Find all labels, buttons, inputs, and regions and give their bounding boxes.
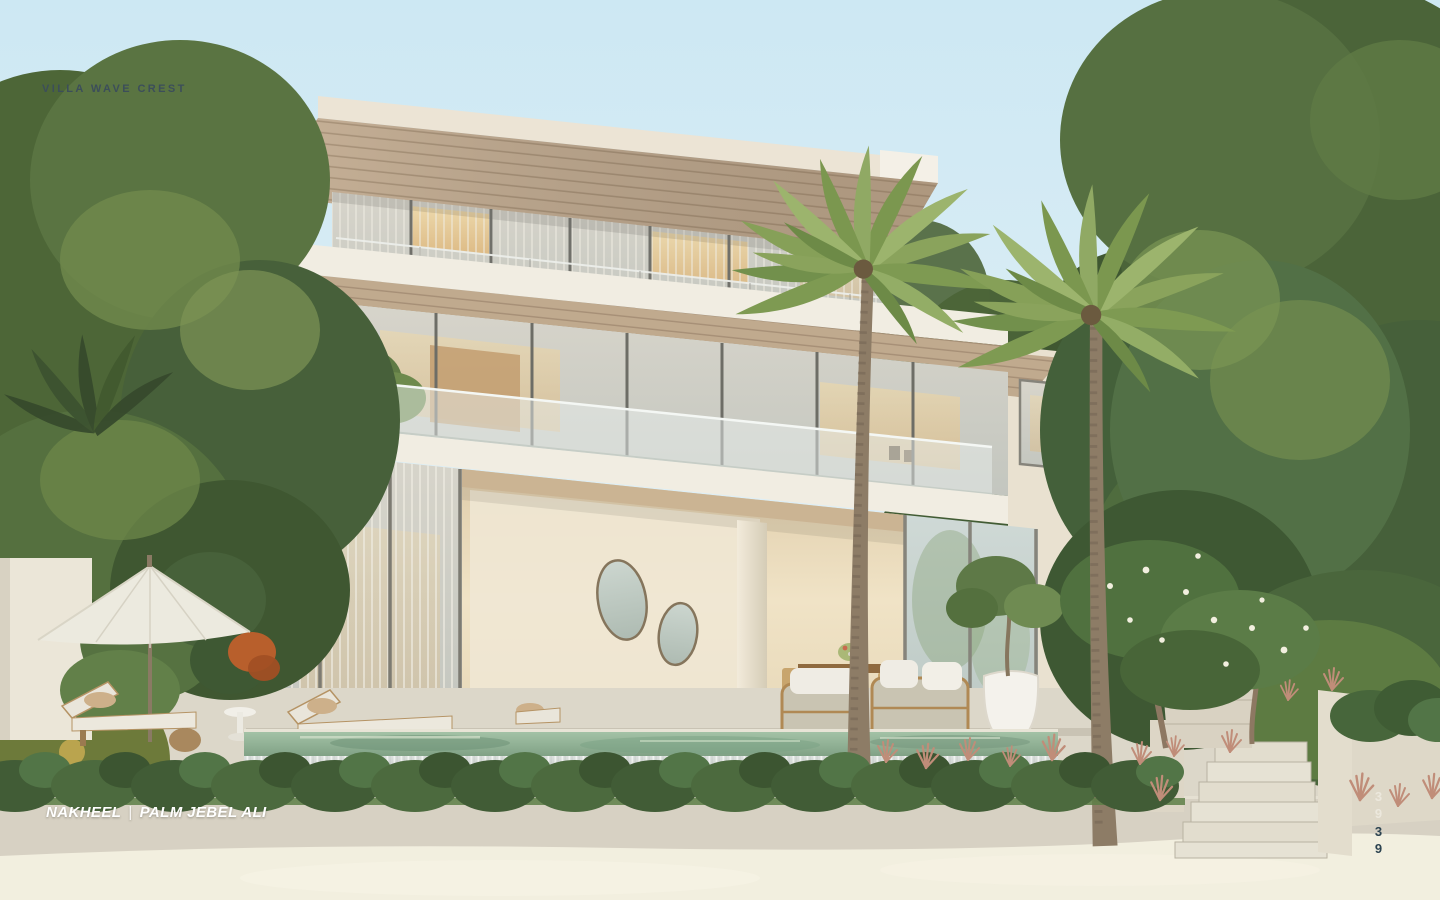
brand-separator: |	[128, 804, 132, 821]
brand-footer: NAKHEEL | PALM JEBEL ALI	[46, 804, 267, 821]
brand-name: NAKHEEL	[46, 804, 121, 821]
brochure-page: VILLA WAVE CREST NAKHEEL | PALM JEBEL AL…	[0, 0, 1440, 900]
villa-rendering	[0, 0, 1440, 900]
page-title: VILLA WAVE CREST	[42, 83, 187, 95]
page-number: 39 39	[1372, 789, 1385, 858]
page-number-upper: 39	[1372, 789, 1385, 823]
brand-location: PALM JEBEL ALI	[140, 804, 267, 821]
page-number-lower: 39	[1372, 824, 1385, 858]
